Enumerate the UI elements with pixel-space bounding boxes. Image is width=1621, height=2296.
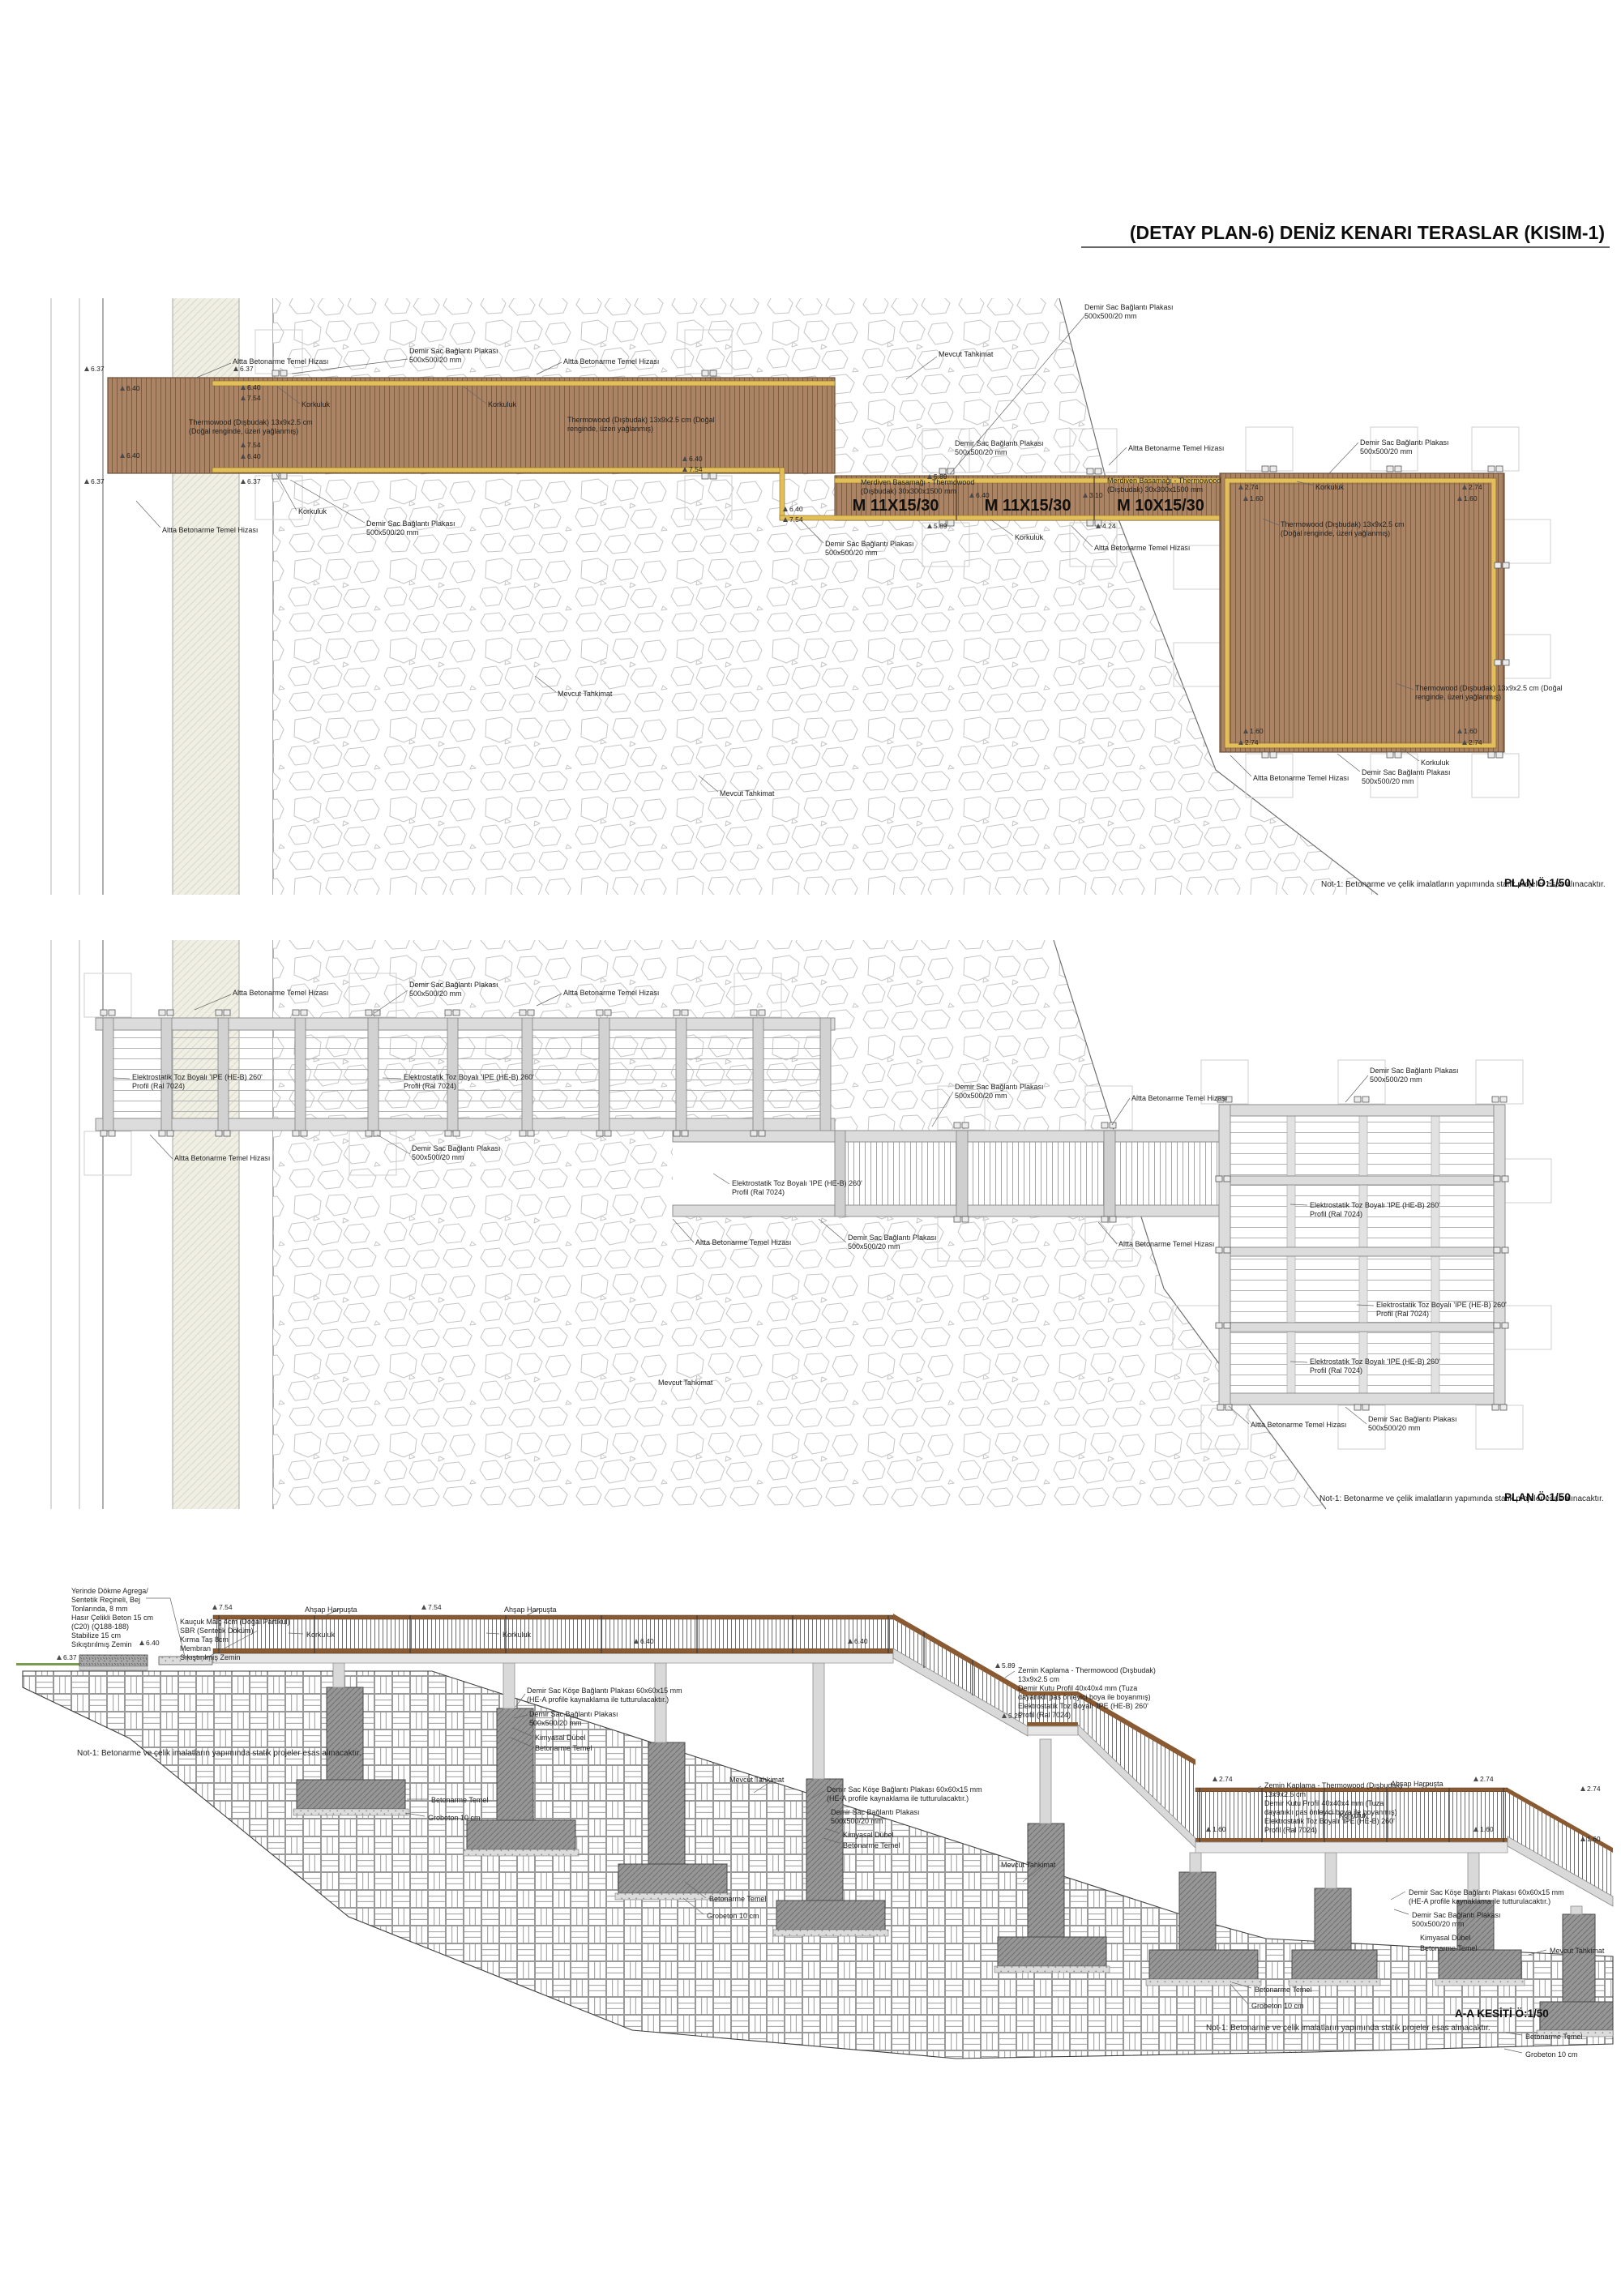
drawing-label: Grobeton 10 cm xyxy=(428,1814,481,1823)
elevation-mark: 1.60 xyxy=(1457,494,1478,502)
drawing-label: Korkuluk xyxy=(1315,483,1344,492)
drawing-label: Altta Betonarme Temel Hizası xyxy=(1131,1094,1227,1103)
drawing-label: Betonarme Temel xyxy=(431,1796,488,1805)
drawing-label: Betonarme Temel xyxy=(535,1744,592,1753)
elevation-mark: 2.74 xyxy=(1213,1775,1233,1783)
drawing-label: Demir Sac Bağlantı Plakası 500x500/20 mm xyxy=(1368,1415,1457,1433)
drawing-label: Demir Sac Bağlantı Plakası 500x500/20 mm xyxy=(848,1234,937,1251)
drawing-label: Mevcut Tahkimat xyxy=(1550,1947,1604,1956)
elevation-mark: 5.25 xyxy=(1002,1712,1022,1720)
drawing-label: Mevcut Tahkimat xyxy=(1001,1861,1055,1870)
drawing-label: Elektrostatik Toz Boyalı 'IPE (HE-B) 260… xyxy=(1376,1301,1507,1319)
drawing-label: Altta Betonarme Temel Hizası xyxy=(563,989,659,998)
drawing-label: Elektrostatik Toz Boyalı 'IPE (HE-B) 260… xyxy=(404,1073,534,1091)
drawing-label: Demir Sac Bağlantı Plakası 500x500/20 mm xyxy=(409,981,498,998)
drawing-label: Demir Sac Bağlantı Plakası 500x500/20 mm xyxy=(409,347,498,365)
drawing-label: Altta Betonarme Temel Hizası xyxy=(1251,1421,1346,1430)
stair-designation: M 11X15/30 xyxy=(853,496,939,515)
stair-designation: M 11X15/30 xyxy=(985,496,1071,515)
drawing-label: Grobeton 10 cm xyxy=(1525,2050,1578,2059)
elevation-mark: 6.37 xyxy=(84,365,105,373)
drawing-label: Mevcut Tahkimat xyxy=(729,1776,784,1785)
drawing-label: Elektrostatik Toz Boyalı 'IPE (HE-B) 260… xyxy=(732,1179,862,1197)
drawing-label: Altta Betonarme Temel Hizası xyxy=(233,989,328,998)
elevation-mark: 2.74 xyxy=(1238,738,1259,746)
drawing-label: Demir Sac Bağlantı Plakası 500x500/20 mm xyxy=(1362,768,1451,786)
elevation-mark: 2.74 xyxy=(1473,1775,1494,1783)
drawing-label: Zemin Kaplama - Thermowood (Dışbudak) 13… xyxy=(1018,1666,1176,1720)
elevation-mark: 6.40 xyxy=(634,1637,654,1645)
elevation-mark: 6.40 xyxy=(120,384,140,392)
drawing-label: Altta Betonarme Temel Hizası xyxy=(174,1154,270,1163)
drawing-label: Kimyasal Dübel xyxy=(1420,1934,1471,1943)
section-scale-caption: A-A KESİTİ Ö:1/50 xyxy=(1455,2007,1549,2020)
drawing-label: Thermowood (Dışbudak) 13x9x2.5 cm (Doğal… xyxy=(1415,684,1569,702)
elevation-mark: 1.60 xyxy=(1473,1825,1494,1833)
drawing-label: Thermowood (Dışbudak) 13x9x2.5 cm (Doğal… xyxy=(189,418,335,436)
drawing-label: Altta Betonarme Temel Hizası xyxy=(695,1238,791,1247)
elevation-mark: 6.40 xyxy=(682,455,703,463)
elevation-mark: 6.40 xyxy=(783,505,803,513)
drawing-sheet: (DETAY PLAN-6) DENİZ KENARI TERASLAR (KI… xyxy=(0,0,1621,2296)
drawing-label: Kimyasal Dübel xyxy=(535,1734,586,1742)
drawing-label: Demir Sac Bağlantı Plakası 500x500/20 mm xyxy=(1412,1911,1501,1929)
elevation-mark: 6.40 xyxy=(120,451,140,460)
elevation-mark: 7.54 xyxy=(682,465,703,473)
drawing-label: Betonarme Temel xyxy=(709,1895,766,1904)
drawing-label: Altta Betonarme Temel Hizası xyxy=(563,357,659,366)
section-note: Not-1: Betonarme ve çelik imalatların ya… xyxy=(77,1749,361,1759)
drawing-label: Ahşap Harpuşta xyxy=(1391,1780,1444,1789)
drawing-label: Demir Sac Köşe Bağlantı Plakası 60x60x15… xyxy=(1409,1888,1564,1906)
elevation-mark: 1.60 xyxy=(1243,494,1264,502)
drawing-label: Korkuluk xyxy=(503,1631,531,1640)
plan1-scale-caption: PLAN Ö:1/50 xyxy=(1504,877,1571,890)
drawing-label: Demir Sac Köşe Bağlantı Plakası 60x60x15… xyxy=(527,1687,682,1704)
elevation-mark: 6.40 xyxy=(969,491,990,499)
drawing-label: Altta Betonarme Temel Hizası xyxy=(162,526,258,535)
plan2-scale-caption: PLAN Ö:1/50 xyxy=(1504,1491,1571,1504)
elevation-mark: 6.37 xyxy=(57,1653,77,1661)
drawing-label: Mevcut Tahkimat xyxy=(720,789,774,798)
drawing-label: Demir Sac Bağlantı Plakası 500x500/20 mm xyxy=(1360,438,1449,456)
drawing-label: Betonarme Temel xyxy=(1255,1986,1311,1995)
drawing-label: Korkuluk xyxy=(306,1631,335,1640)
drawing-label: Grobeton 10 cm xyxy=(1251,2002,1304,2011)
elevation-mark: 5.89 xyxy=(995,1661,1016,1670)
drawing-label: Demir Sac Bağlantı Plakası 500x500/20 mm xyxy=(825,540,914,558)
drawing-label: Ahşap Harpuşta xyxy=(305,1605,357,1614)
elevation-mark: 7.54 xyxy=(783,515,803,524)
elevation-mark: 5.89 xyxy=(927,522,947,530)
drawing-label: Demir Sac Bağlantı Plakası 500x500/20 mm xyxy=(1084,303,1174,321)
elevation-mark: 7.54 xyxy=(421,1603,442,1611)
drawing-label: Merdiven Basamağı - Thermowood (Dışbudak… xyxy=(861,478,974,496)
elevation-mark: 1.60 xyxy=(1243,727,1264,735)
elevation-mark: 7.54 xyxy=(241,441,261,449)
drawing-label: Kauçuk Malç 4cm (Doğal Partikül) SBR (Se… xyxy=(180,1618,290,1662)
technical-drawing-canvas xyxy=(0,0,1621,2296)
drawing-label: Demir Sac Bağlantı Plakası 500x500/20 mm xyxy=(366,519,456,537)
section-note-2: Not-1: Betonarme ve çelik imalatların ya… xyxy=(1206,2024,1491,2033)
drawing-label: Demir Sac Bağlantı Plakası 500x500/20 mm xyxy=(1370,1067,1459,1084)
drawing-label: Korkuluk xyxy=(488,400,516,409)
drawing-label: Demir Sac Bağlantı Plakası 500x500/20 mm xyxy=(955,439,1044,457)
drawing-label: Elektrostatik Toz Boyalı 'IPE (HE-B) 260… xyxy=(1310,1358,1440,1375)
drawing-label: Mevcut Tahkimat xyxy=(658,1379,712,1387)
drawing-label: Kimyasal Dübel xyxy=(843,1831,894,1840)
elevation-mark: 7.54 xyxy=(241,394,261,402)
steel-frame-stair xyxy=(673,1131,1240,1216)
drawing-label: Korkuluk xyxy=(302,400,330,409)
drawing-label: Betonarme Temel xyxy=(1420,1944,1477,1953)
elevation-mark: 6.40 xyxy=(241,383,261,391)
stair-designation: M 10X15/30 xyxy=(1117,496,1204,515)
elevation-mark: 6.37 xyxy=(84,477,105,485)
elevation-mark: 7.54 xyxy=(212,1603,233,1611)
drawing-label: Merdiven Basamağı - Thermowood (Dışbudak… xyxy=(1107,477,1221,494)
elevation-mark: 6.40 xyxy=(241,452,261,460)
drawing-label: Korkuluk xyxy=(1339,1811,1367,1820)
drawing-label: Demir Sac Bağlantı Plakası 500x500/20 mm xyxy=(831,1808,920,1826)
elevation-mark: 2.74 xyxy=(1238,483,1259,491)
elevation-mark: 6.37 xyxy=(233,365,254,373)
drawing-label: Demir Sac Bağlantı Plakası 500x500/20 mm xyxy=(412,1144,501,1162)
elevation-mark: 6.37 xyxy=(241,477,261,485)
elevation-mark: 6.40 xyxy=(848,1637,868,1645)
elevation-mark: 5.89 xyxy=(927,472,947,481)
elevation-mark: 6.40 xyxy=(139,1639,160,1647)
drawing-label: Altta Betonarme Temel Hizası xyxy=(1128,444,1224,453)
drawing-label: Demir Sac Köşe Bağlantı Plakası 60x60x15… xyxy=(827,1785,982,1803)
drawing-label: Grobeton 10 cm xyxy=(707,1912,759,1921)
elevation-mark: 1.60 xyxy=(1206,1825,1226,1833)
drawing-label: Thermowood (Dışbudak) 13x9x2.5 cm (Doğal… xyxy=(1281,520,1426,538)
drawing-label: Korkuluk xyxy=(298,507,327,516)
terrace-deck xyxy=(1220,473,1504,752)
elevation-mark: 2.74 xyxy=(1580,1785,1601,1793)
drawing-label: Demir Sac Bağlantı Plakası 500x500/20 mm xyxy=(955,1083,1044,1101)
drawing-label: Demir Sac Bağlantı Plakası 500x500/20 mm xyxy=(529,1710,618,1728)
elevation-mark: 1.60 xyxy=(1457,727,1478,735)
drawing-label: Korkuluk xyxy=(1421,759,1449,767)
elevation-mark: 1.60 xyxy=(1580,1835,1601,1843)
drawing-label: Altta Betonarme Temel Hizası xyxy=(1118,1240,1214,1249)
drawing-label: Altta Betonarme Temel Hizası xyxy=(1094,544,1190,553)
drawing-label: Ahşap Harpuşta xyxy=(504,1605,557,1614)
elevation-mark: 3.10 xyxy=(1083,491,1103,499)
drawing-label: Mevcut Tahkimat xyxy=(558,690,612,699)
drawing-label: Betonarme Temel xyxy=(1525,2033,1582,2042)
drawing-label: Elektrostatik Toz Boyalı 'IPE (HE-B) 260… xyxy=(1310,1201,1440,1219)
elevation-mark: 4.24 xyxy=(1096,522,1116,530)
drawing-label: Altta Betonarme Temel Hizası xyxy=(1253,774,1349,783)
drawing-label: Zemin Kaplama - Thermowood (Dışbudak) 13… xyxy=(1264,1781,1431,1835)
elevation-mark: 2.74 xyxy=(1462,738,1482,746)
drawing-label: Betonarme Temel xyxy=(843,1841,900,1850)
elevation-mark: 2.74 xyxy=(1462,483,1482,491)
drawing-label: Elektrostatik Toz Boyalı 'IPE (HE-B) 260… xyxy=(132,1073,263,1091)
drawing-label: Thermowood (Dışbudak) 13x9x2.5 cm (Doğal… xyxy=(567,416,717,434)
drawing-label: Korkuluk xyxy=(1015,533,1043,542)
drawing-label: Mevcut Tahkimat xyxy=(939,350,993,359)
plan-view-top xyxy=(51,298,1550,895)
